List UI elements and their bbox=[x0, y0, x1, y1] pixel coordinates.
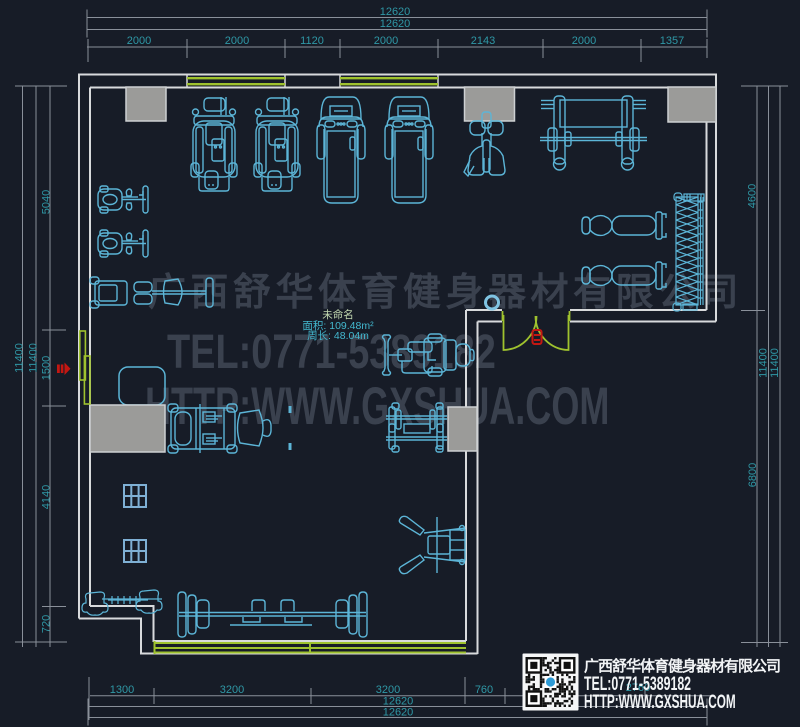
svg-text:2000: 2000 bbox=[374, 35, 398, 47]
svg-text:2143: 2143 bbox=[471, 35, 495, 47]
svg-text:2000: 2000 bbox=[572, 35, 596, 47]
svg-text:760: 760 bbox=[475, 684, 493, 696]
svg-text:11400: 11400 bbox=[769, 348, 781, 378]
svg-text:HTTP:WWW.GXSHUA.COM: HTTP:WWW.GXSHUA.COM bbox=[145, 376, 609, 436]
svg-text:广西舒华体育健身器材有限公司: 广西舒华体育健身器材有限公司 bbox=[148, 272, 743, 314]
svg-text:720: 720 bbox=[41, 615, 53, 633]
svg-text:1300: 1300 bbox=[110, 684, 134, 696]
svg-text:3200: 3200 bbox=[376, 684, 400, 696]
svg-text:12620: 12620 bbox=[380, 6, 411, 18]
svg-text:2000: 2000 bbox=[127, 35, 151, 47]
svg-text:广西舒华体育健身器材有限公司: 广西舒华体育健身器材有限公司 bbox=[584, 657, 780, 675]
svg-text:12620: 12620 bbox=[383, 707, 414, 719]
svg-text:12620: 12620 bbox=[380, 18, 411, 30]
svg-text:3200: 3200 bbox=[220, 684, 244, 696]
svg-text:1120: 1120 bbox=[300, 35, 324, 47]
svg-text:11400: 11400 bbox=[14, 343, 26, 373]
svg-text:11400: 11400 bbox=[28, 343, 40, 373]
svg-text:2000: 2000 bbox=[225, 35, 249, 47]
svg-text:11400: 11400 bbox=[758, 348, 770, 378]
svg-text:1357: 1357 bbox=[660, 35, 684, 47]
svg-text:4600: 4600 bbox=[747, 184, 759, 208]
svg-text:5040: 5040 bbox=[41, 190, 53, 214]
svg-text:1500: 1500 bbox=[41, 356, 53, 380]
svg-text:HTTP:WWW.GXSHUA.COM: HTTP:WWW.GXSHUA.COM bbox=[584, 692, 736, 712]
svg-text:4140: 4140 bbox=[41, 485, 53, 509]
svg-text:6800: 6800 bbox=[747, 463, 759, 487]
svg-text:周长: 48.04m: 周长: 48.04m bbox=[307, 330, 369, 342]
